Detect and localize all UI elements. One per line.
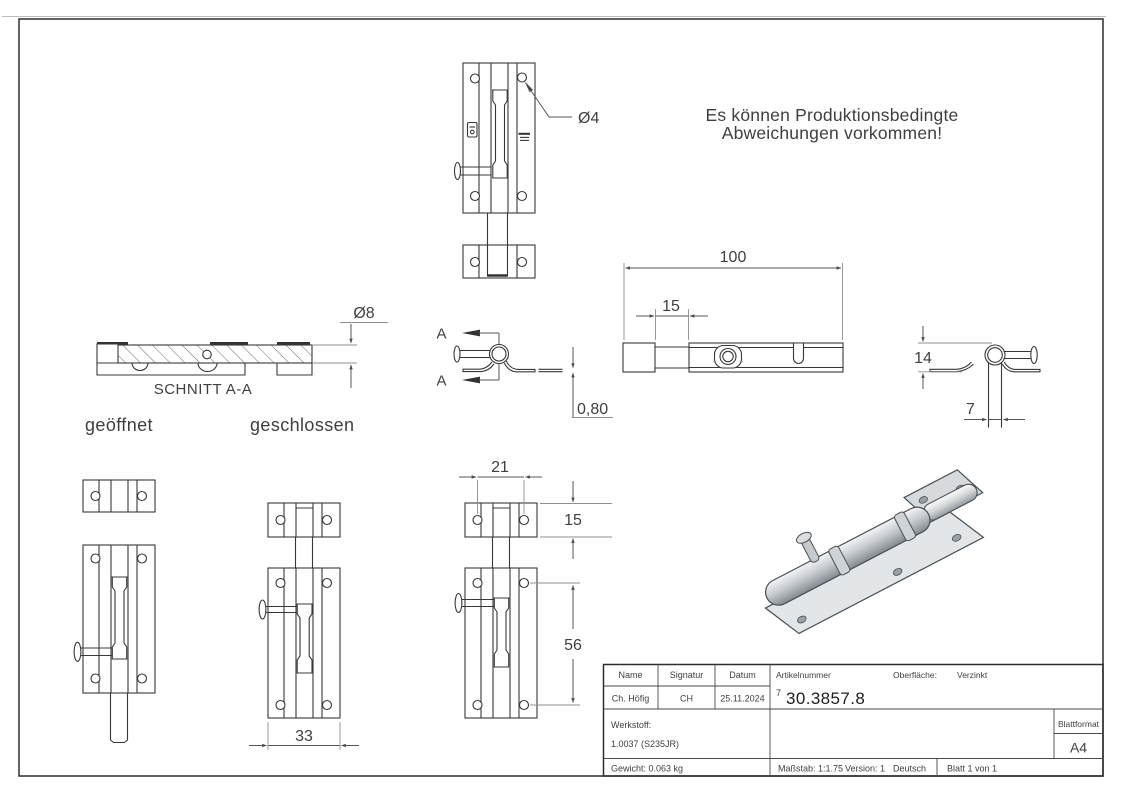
- blatt: Blatt 1 von 1: [947, 764, 997, 774]
- view-plan: 100 15: [623, 249, 843, 372]
- sprache: Deutsch: [893, 764, 926, 774]
- dim-hole-spacing-y: 56: [530, 583, 582, 705]
- view-side-cut: A A 0,80: [437, 326, 614, 419]
- dim-length-total-label: 100: [720, 249, 747, 266]
- dim-thickness-label: 0,80: [577, 401, 608, 418]
- artikelnummer-value: 30.3857.8: [786, 689, 865, 708]
- dim-dia8: Ø8: [312, 305, 388, 388]
- section-arrow-bottom: [462, 377, 480, 384]
- dim-plate-width-label: 33: [295, 728, 313, 745]
- header-datum: Datum: [729, 670, 756, 680]
- brand-stamp: [468, 123, 478, 138]
- dim-thickness: 0,80: [572, 347, 613, 418]
- bolt-3d-render: [743, 451, 1001, 642]
- knob: [1031, 347, 1037, 364]
- blattformat-value: A4: [1070, 740, 1087, 756]
- oberflaeche-label: Oberfläche:: [893, 670, 937, 680]
- dim-rod-width: 7: [964, 401, 1025, 420]
- dim-rod-width-label: 7: [966, 401, 975, 418]
- label-open: geöffnet: [85, 415, 153, 435]
- technical-drawing-sheet: Es können Produktionsbedingte Abweichung…: [0, 0, 1123, 794]
- werkstoff-label: Werkstoff:: [611, 720, 651, 730]
- knob: [74, 642, 81, 661]
- production-note: Es können Produktionsbedingte Abweichung…: [706, 105, 959, 143]
- dim-keeper-height-label: 15: [564, 512, 582, 529]
- dim-body-height-label: 14: [914, 350, 932, 367]
- dim-hole-spacing-x-label: 21: [491, 459, 509, 476]
- dim-body-height: 14: [914, 326, 992, 389]
- knob: [455, 594, 462, 613]
- value-signatur: CH: [680, 694, 693, 704]
- knob: [259, 600, 266, 619]
- knob: [455, 163, 461, 180]
- dim-dia4: Ø4: [525, 81, 600, 127]
- dim-length-total: 100: [624, 249, 843, 340]
- dim-hole-spacing-y-label: 56: [564, 637, 582, 654]
- dim-keeper-height: 15: [540, 481, 612, 559]
- blattformat-label: Blattformat: [1058, 719, 1100, 729]
- knob: [454, 346, 460, 362]
- note-line-1: Es können Produktionsbedingte: [706, 105, 959, 125]
- dim-dia8-label: Ø8: [353, 305, 374, 322]
- dim-neck-offset-label: 15: [662, 298, 680, 315]
- view-front-closed: Ø4: [455, 63, 600, 278]
- view-section-aa: Ø8 SCHNITT A-A: [97, 305, 388, 398]
- view-open: [74, 480, 155, 743]
- oberflaeche-value: Verzinkt: [957, 670, 988, 680]
- dim-neck-offset: 15: [636, 298, 708, 340]
- gewicht: Gewicht: 0.063 kg: [611, 764, 683, 774]
- dim-plate-width: 33: [249, 722, 359, 750]
- view-closed: 33: [249, 503, 359, 750]
- header-signatur: Signatur: [670, 670, 704, 680]
- label-closed: geschlossen: [250, 415, 354, 435]
- cut-arrow-label-bottom: A: [437, 373, 448, 390]
- section-arrow-top: [462, 330, 480, 337]
- header-name: Name: [618, 670, 642, 680]
- version: Version: 1: [845, 764, 885, 774]
- artikelnummer-label: Artikelnummer: [776, 670, 831, 680]
- dim-dia4-label: Ø4: [578, 110, 599, 127]
- view-closed-dimensioned: 21 15 56: [455, 459, 612, 718]
- value-name: Ch. Höfig: [612, 694, 650, 704]
- embossed-marks: [519, 134, 531, 141]
- view-side-right: 14 7: [914, 326, 1040, 427]
- section-label: SCHNITT A-A: [154, 381, 253, 398]
- dim-hole-spacing-x: 21: [459, 459, 542, 514]
- werkstoff-value: 1.0037 (S235JR): [611, 739, 679, 749]
- title-block: Name Signatur Datum Ch. Höfig CH 25.11.2…: [604, 665, 1104, 777]
- massstab: Maßstab: 1:1.75: [778, 764, 843, 774]
- cut-arrow-label-top: A: [437, 326, 448, 343]
- artikelnummer-prefix: 7: [776, 688, 781, 698]
- note-line-2: Abweichungen vorkommen!: [722, 123, 943, 143]
- value-datum: 25.11.2024: [720, 694, 764, 704]
